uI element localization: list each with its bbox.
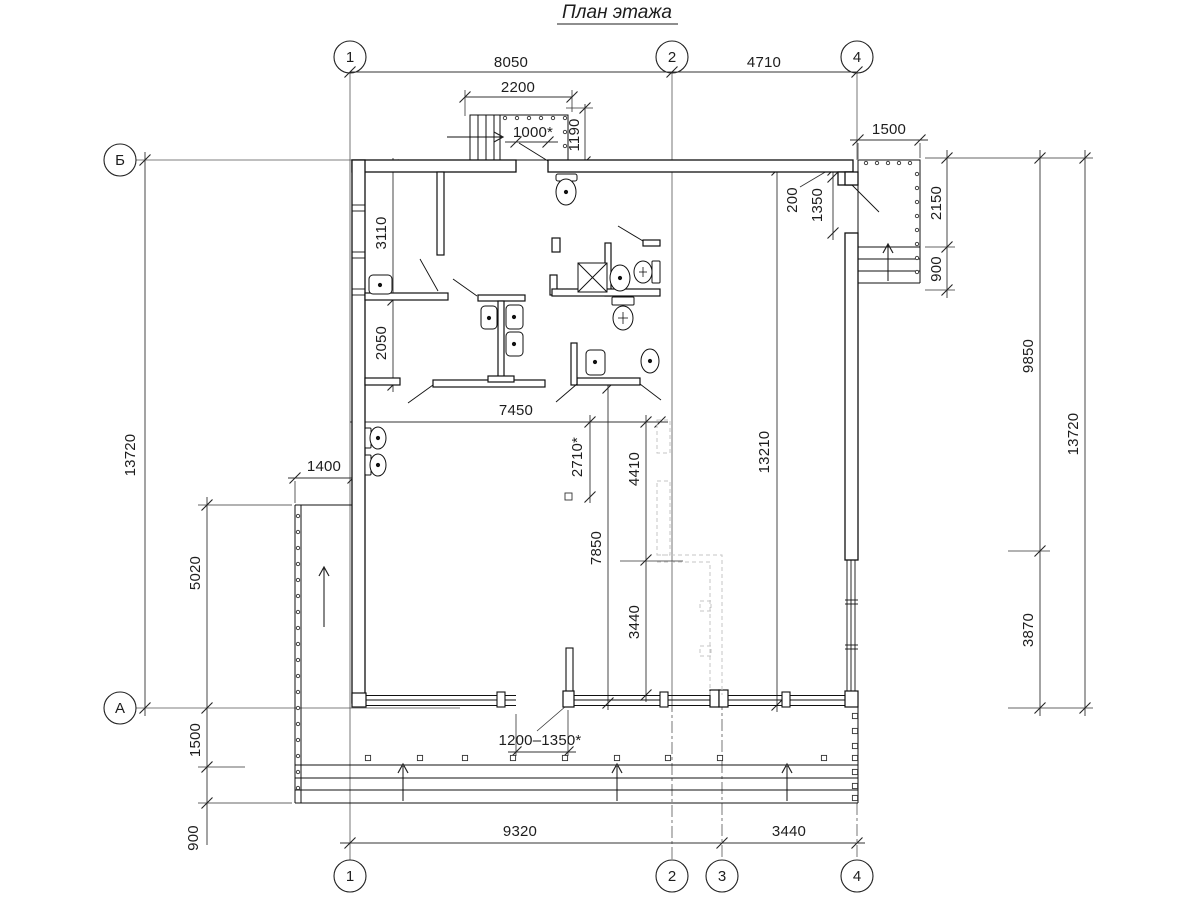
axis-label-left-a: А [115,700,125,717]
sink-wc2-wall [641,349,659,373]
toilet-wc1 [634,261,660,283]
axis-label-bottom-2: 2 [668,868,676,885]
dim-left-1500: 1500 [187,723,204,757]
dim-hall-7450: 7450 [499,402,533,419]
dim-hall-4410: 4410 [626,452,643,486]
dim-left-1400: 1400 [307,458,341,475]
axis-label-top-2: 2 [668,49,676,66]
toilet-wc2 [612,297,634,330]
axis-label-left-b: Б [115,152,125,169]
axis-label-bottom-1: 1 [346,868,354,885]
axis-label-bottom-3: 3 [718,868,726,885]
axis-bubble-labels: 1 2 4 Б А 1 2 3 4 [115,49,861,885]
dim-hall-7850: 7850 [588,531,605,565]
dim-left-5020: 5020 [187,556,204,590]
sink-wc1 [610,265,630,291]
title-text: План этажа [562,2,672,23]
shower-tray [578,263,607,292]
dim-hall-3440: 3440 [626,605,643,639]
dim-porch-2150: 2150 [928,186,945,220]
plumbing-fixtures [365,174,660,476]
right-porch [858,160,920,283]
dim-bottom-9320: 9320 [503,823,537,840]
dim-entry-2200: 2200 [501,79,535,96]
dim-entry-1000: 1000* [513,124,553,141]
dim-hall-2710: 2710* [569,437,586,477]
bottom-glazed-wall [352,648,845,707]
axis-label-bottom-4: 4 [853,868,861,885]
dim-right-13720: 13720 [1065,413,1082,456]
furniture-dashed-outline [657,420,722,695]
drawing-title: План этажа [557,2,678,24]
dim-opening-1200-1350: 1200–1350* [499,732,582,749]
dim-top-8050: 8050 [494,54,528,71]
dim-bottom-3440: 3440 [772,823,806,840]
dim-left-900: 900 [185,825,202,851]
dim-entry-1190: 1190 [566,118,583,151]
floor-plan-drawing: План этажа 1 2 4 Б А 1 2 3 4 [0,0,1200,900]
sink-wc2-corner [586,350,605,375]
dimension-ticks [140,67,1091,849]
terrace [295,707,858,803]
right-glazed-wall [845,560,858,707]
dim-top-4710: 4710 [747,54,781,71]
outer-walls [352,160,858,703]
axis-grid-lines [136,73,857,860]
sink-entry-wall [556,174,577,205]
dimension-texts: 8050 4710 2200 1000* 1190 1500 200 1350 … [122,54,1082,851]
dim-room-2050: 2050 [373,326,390,360]
dim-wall-200: 200 [784,187,801,213]
dim-left-13720: 13720 [122,434,139,477]
axis-label-top-1: 1 [346,49,354,66]
axis-label-top-4: 4 [853,49,861,66]
left-ramp [295,505,352,803]
dim-porch-900: 900 [928,256,945,282]
dim-hall-13210: 13210 [756,431,773,474]
dim-room-3110: 3110 [373,216,390,249]
sink-room1 [369,275,392,294]
dim-right-9850: 9850 [1020,339,1037,373]
dim-porch-1500: 1500 [872,121,906,138]
dim-wall-1350: 1350 [809,188,826,222]
wall-toilets-hall [365,427,386,476]
dim-right-3870: 3870 [1020,613,1037,647]
floor-plan-page: План этажа 1 2 4 Б А 1 2 3 4 [0,0,1200,900]
